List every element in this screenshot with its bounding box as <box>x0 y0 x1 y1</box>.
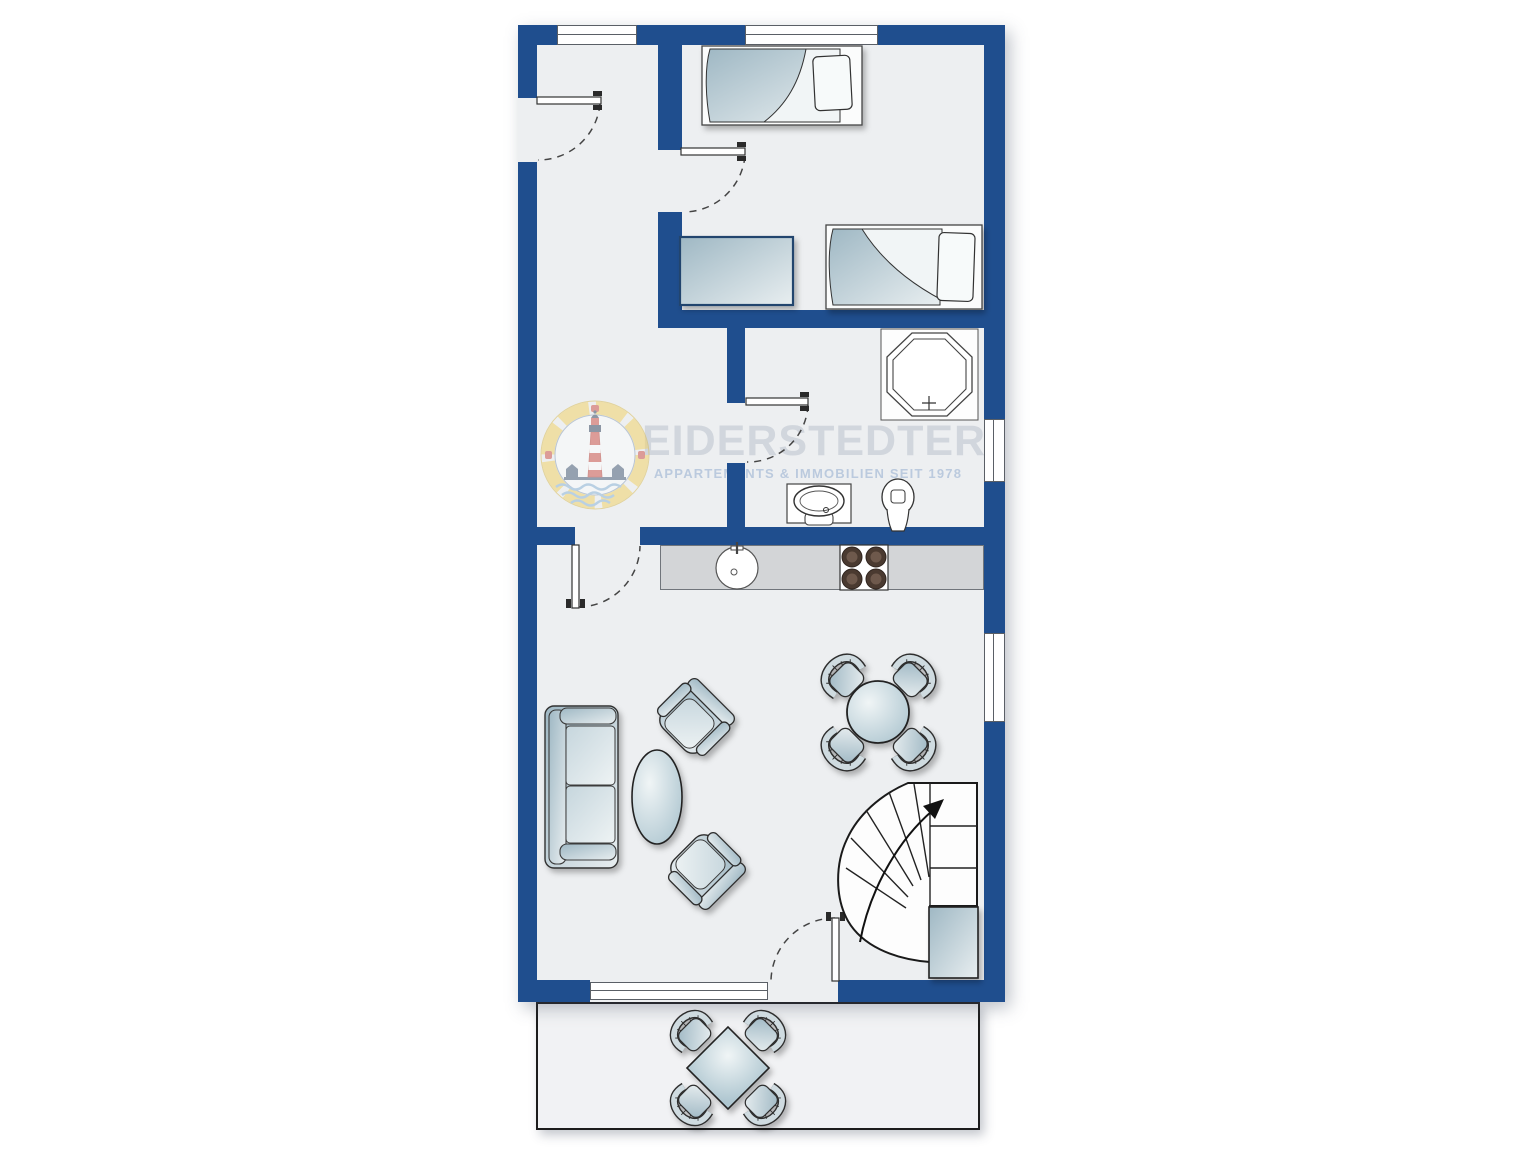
kitchen-sink <box>716 542 758 589</box>
bedroom-door <box>681 142 746 212</box>
entry-door <box>537 91 602 160</box>
shower <box>881 329 978 420</box>
dining-table <box>847 681 909 743</box>
coffee-table <box>632 750 682 844</box>
plan-overlay <box>0 0 1536 1152</box>
terrace-set <box>667 1007 789 1129</box>
toilet <box>882 479 914 531</box>
single-bed-2 <box>826 225 982 309</box>
floor-plan-page: EIDERSTEDTER APPARTEMENTS & IMMOBILIEN S… <box>0 0 1536 1152</box>
terrace-door <box>771 912 845 981</box>
sofa <box>545 706 618 868</box>
dining-set <box>818 651 939 774</box>
stove <box>840 545 888 590</box>
wardrobe <box>680 237 793 305</box>
watermark-logo <box>541 401 649 509</box>
understair-cupboard <box>929 907 978 978</box>
armchair-2 <box>662 826 750 914</box>
single-bed-1 <box>702 46 862 125</box>
living-room-door <box>566 545 640 608</box>
armchair-1 <box>651 674 739 762</box>
bathroom-door <box>746 392 809 462</box>
washbasin <box>787 484 851 525</box>
